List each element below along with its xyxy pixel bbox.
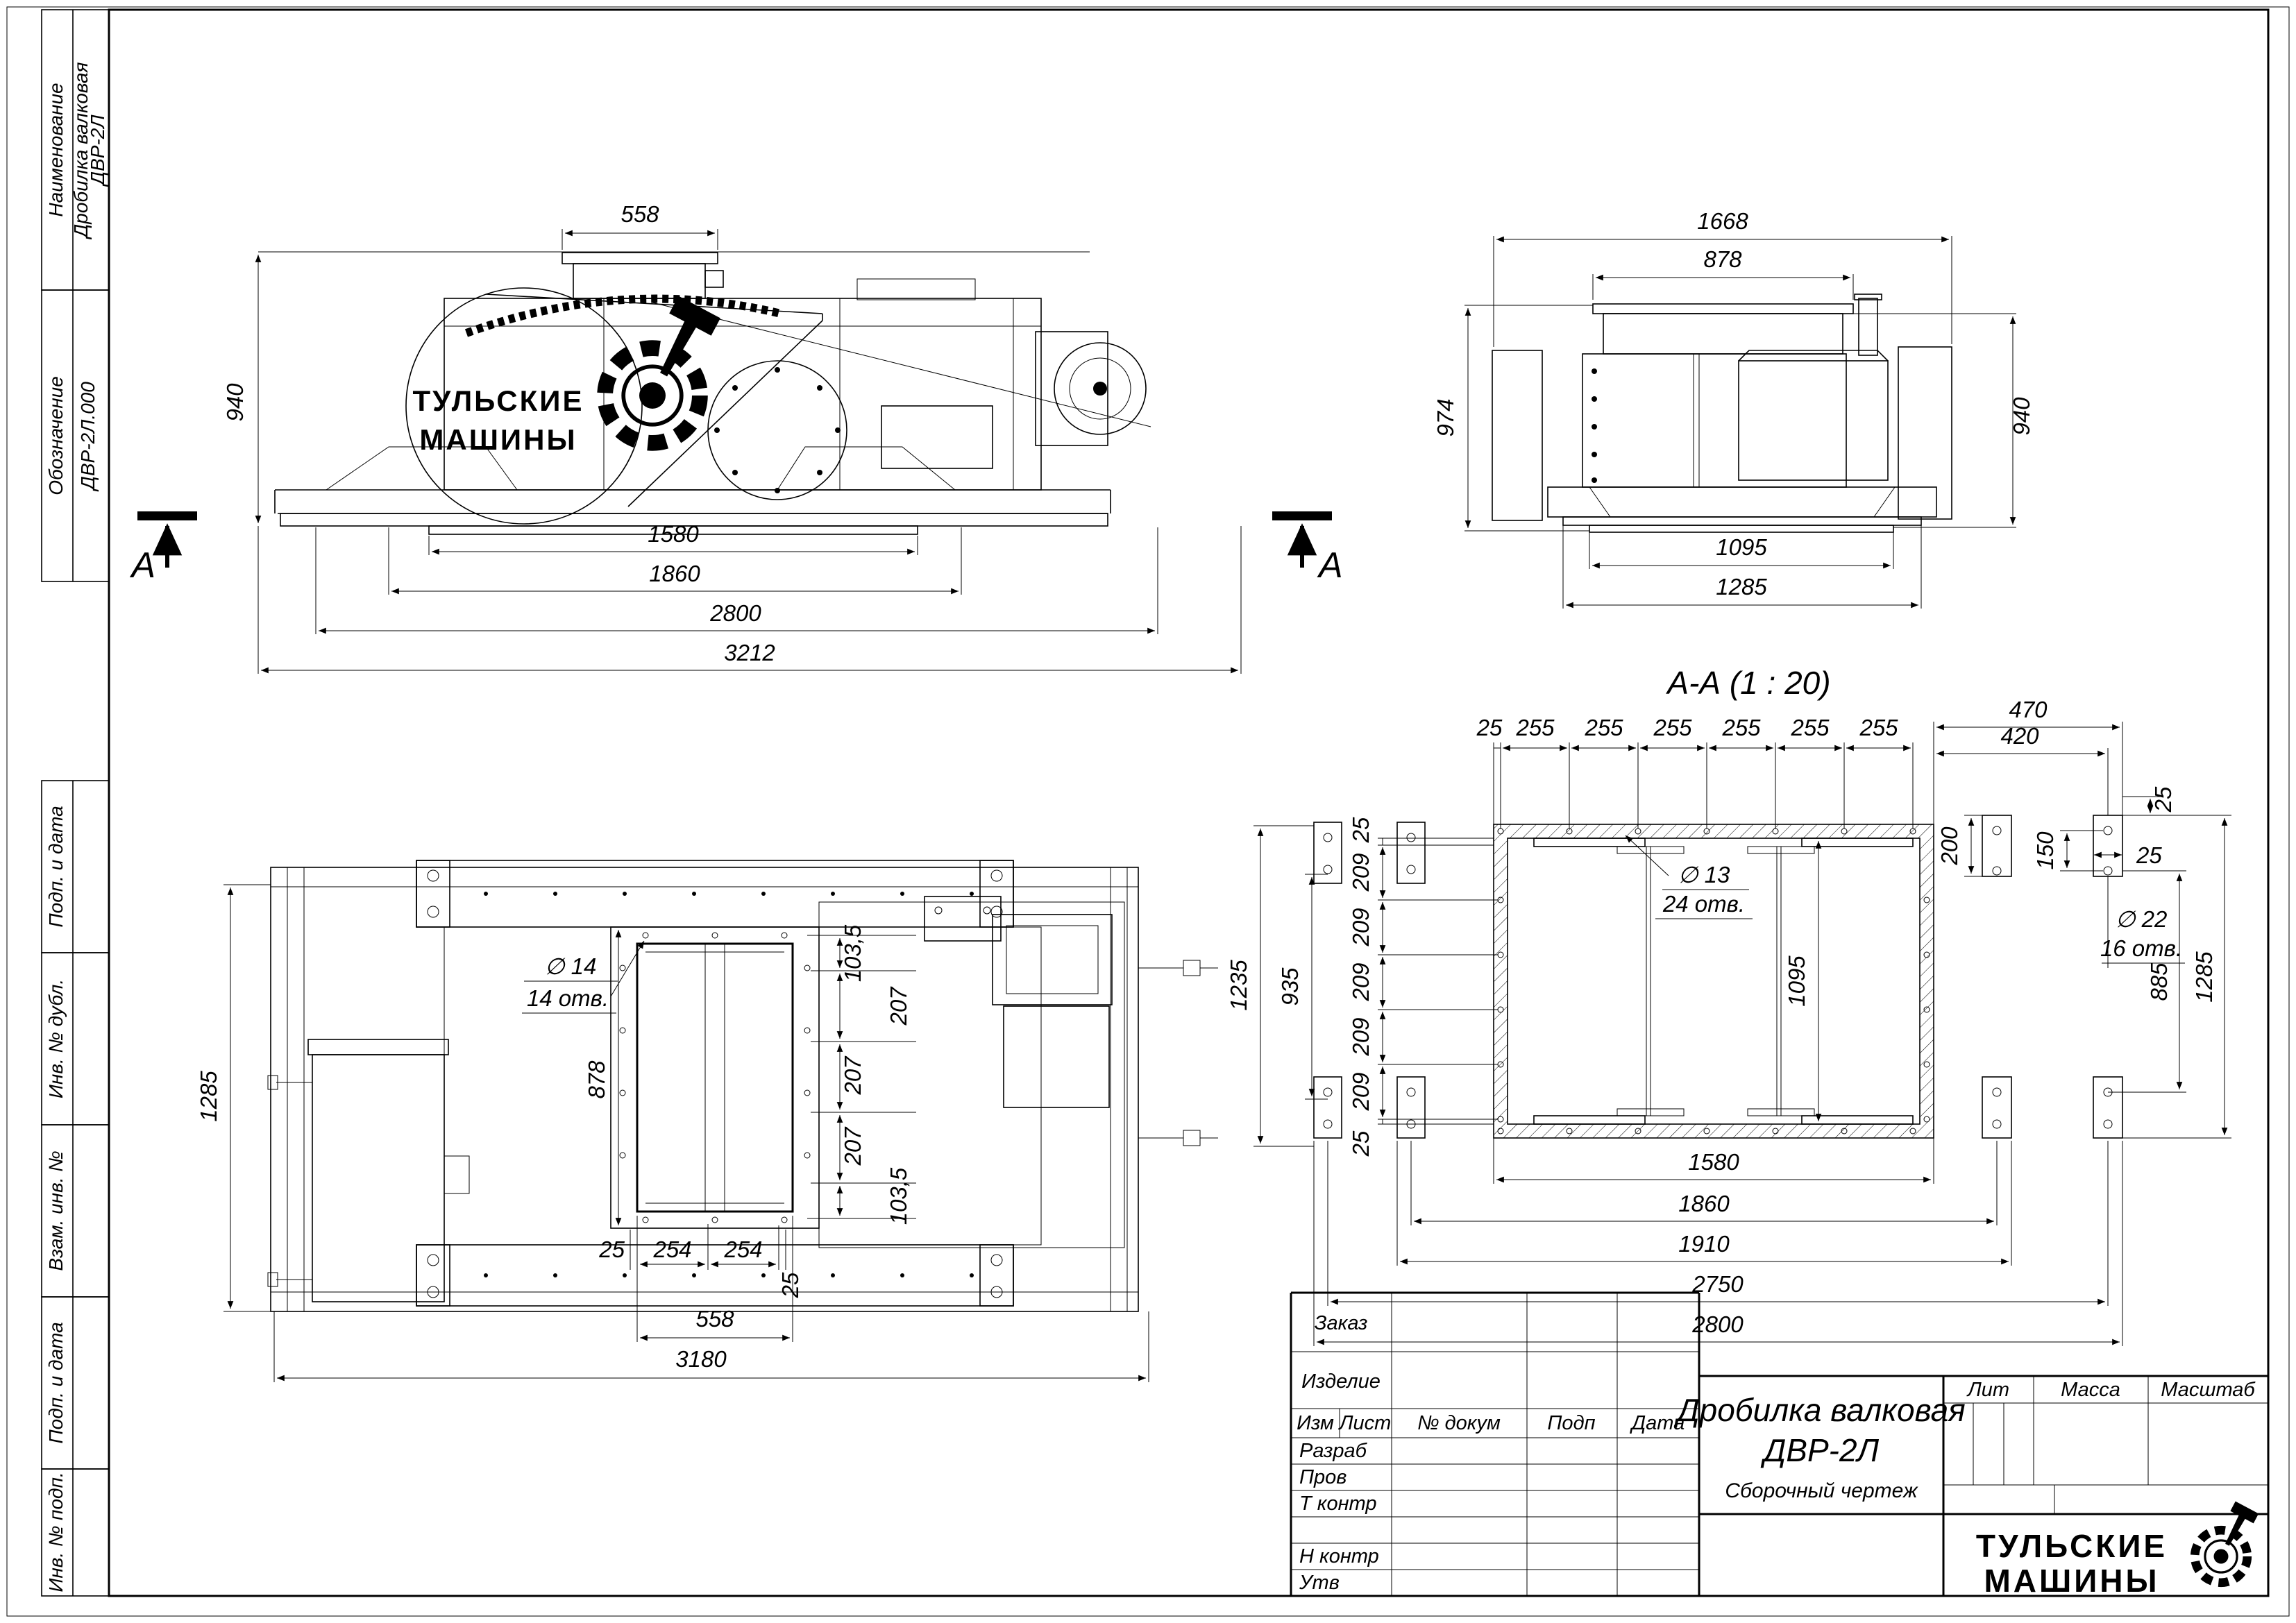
dim-2800: 2800	[709, 600, 761, 626]
side-view: ТУЛЬСКИЕ МАШИНЫ 940 558 1580 1860 2800 3…	[129, 201, 1342, 674]
dim-v207-1: 207	[886, 986, 911, 1026]
stamp-row-label: Инв. № подп.	[45, 1472, 67, 1592]
sheet-border	[7, 7, 2289, 1616]
dim-left25-bot: 25	[1348, 1130, 1374, 1157]
hole-note-d22: ∅ 22	[2116, 906, 2168, 932]
dim-558-plan: 558	[695, 1306, 734, 1332]
dim-255: 255	[1790, 715, 1830, 740]
dim-209: 209	[1348, 1017, 1374, 1056]
dim-1095-section: 1095	[1784, 955, 1809, 1007]
dim-1860: 1860	[649, 561, 700, 586]
left-stamp-column: Наименование Дробилка валковая ДВР-2Л Об…	[42, 10, 109, 1596]
dim-1285-section: 1285	[2191, 951, 2217, 1003]
dim-209: 209	[1348, 1072, 1374, 1111]
tb-subtitle: Сборочный чертеж	[1725, 1479, 1918, 1502]
stamp-row-label: Подп. и дата	[45, 806, 67, 927]
dim-h254-2: 254	[723, 1237, 762, 1262]
dim-3180: 3180	[675, 1346, 727, 1372]
title-block: Заказ Изделие Изм Лист № докум Подп Дата…	[1291, 1293, 2268, 1599]
dim-top25: 25	[1476, 715, 1503, 740]
dim-v103-2: 103,5	[886, 1167, 911, 1225]
section-title: А-А (1 : 20)	[1665, 665, 1830, 701]
dim-v207-3: 207	[840, 1126, 866, 1166]
section-cut-marker-right: А	[1272, 511, 1343, 586]
stamp-row-label: Взам. инв. №	[45, 1150, 67, 1271]
stamp-name-value-2: ДВР-2Л	[87, 114, 108, 187]
tb-order-label: Заказ	[1315, 1312, 1368, 1334]
dim-558: 558	[621, 201, 659, 227]
dim-209: 209	[1348, 908, 1374, 946]
flange-bolt-holes	[620, 933, 810, 1223]
dim-974: 974	[1433, 398, 1458, 436]
dim-3212: 3212	[724, 640, 775, 665]
dim-878-plan: 878	[584, 1060, 609, 1099]
tb-lit-label: Лит	[1966, 1379, 2009, 1401]
hole-note-d22-count: 16 отв.	[2100, 935, 2182, 961]
section-view: А-А (1 : 20) 25 255 255 255 255 255 255 …	[1226, 665, 2231, 1346]
tb-row-prov: Пров	[1299, 1466, 1347, 1488]
dim-209: 209	[1348, 853, 1374, 892]
tb-title-line1: Дробилка валковая	[1673, 1392, 1966, 1428]
dim-255: 255	[1584, 715, 1623, 740]
tb-row-razrab: Разраб	[1299, 1440, 1368, 1462]
plan-view: 1285 ∅ 14 14 отв. 878 103,5 207 207 207 …	[196, 860, 1218, 1382]
tb-mass-label: Масса	[2061, 1379, 2120, 1401]
guard-logo-line2: МАШИНЫ	[419, 423, 577, 456]
dim-209: 209	[1348, 962, 1374, 1001]
dim-v103-1: 103,5	[840, 924, 866, 982]
dim-255: 255	[1859, 715, 1898, 740]
hole-note-d14: ∅ 14	[545, 953, 597, 979]
dim-1668: 1668	[1697, 208, 1748, 234]
tb-product-label: Изделие	[1301, 1370, 1381, 1393]
stamp-row-label: Инв. № дубл.	[45, 979, 67, 1098]
dim-1235: 1235	[1226, 960, 1251, 1011]
dim-1095: 1095	[1716, 534, 1767, 560]
dim-sec-1580: 1580	[1688, 1149, 1739, 1175]
hole-note-d13: ∅ 13	[1678, 862, 1730, 887]
dim-25-offset-top: 25	[2150, 786, 2176, 813]
dim-sec-1910: 1910	[1678, 1231, 1730, 1257]
drawing-sheet: Наименование Дробилка валковая ДВР-2Л Об…	[0, 0, 2296, 1623]
guard-emblem-gear-icon	[605, 296, 720, 443]
dim-885: 885	[2146, 962, 2172, 1001]
dim-1285-plan: 1285	[196, 1071, 221, 1122]
guard-logo-line1: ТУЛЬСКИЕ	[413, 384, 584, 417]
logo-line2: МАШИНЫ	[1984, 1563, 2159, 1599]
tb-title-line2: ДВР-2Л	[1760, 1432, 1880, 1468]
dim-left25-top: 25	[1348, 817, 1374, 843]
dim-h25-1: 25	[598, 1237, 625, 1262]
stamp-lower-cells: Подп. и дата Инв. № дубл. Взам. инв. № П…	[42, 781, 109, 1596]
end-view: 1668 878 974 940 1095 1285	[1433, 208, 2034, 609]
tb-row-nkontr: Н контр	[1299, 1545, 1379, 1567]
section-letter: А	[1317, 545, 1343, 586]
dim-878: 878	[1703, 246, 1742, 272]
hole-note-d14-count: 14 отв.	[527, 985, 609, 1011]
hole-note-d13-count: 24 отв.	[1662, 891, 1745, 917]
section-letter: А	[129, 545, 155, 586]
tb-col-list: Лист	[1338, 1412, 1392, 1434]
dim-sec-1860: 1860	[1678, 1191, 1730, 1216]
dim-255: 255	[1653, 715, 1692, 740]
tb-col-izm: Изм	[1297, 1412, 1334, 1434]
dim-h25-2: 25	[777, 1272, 803, 1298]
tb-col-ndocum: № докум	[1417, 1412, 1501, 1434]
dim-420: 420	[2000, 723, 2039, 749]
dim-470: 470	[2009, 697, 2048, 722]
dim-940-right: 940	[2009, 397, 2034, 436]
tb-scale-label: Масштаб	[2161, 1379, 2256, 1401]
dim-200: 200	[1936, 826, 1962, 866]
dim-150: 150	[2032, 831, 2058, 870]
logo-line1: ТУЛЬСКИЕ	[1976, 1528, 2168, 1564]
section-cut-marker-left: А	[129, 511, 197, 586]
tb-row-tkontr: Т контр	[1299, 1493, 1377, 1515]
dim-940: 940	[222, 383, 248, 422]
stamp-name-label: Наименование	[45, 83, 67, 216]
dim-1580: 1580	[648, 521, 699, 547]
dim-935: 935	[1277, 967, 1303, 1006]
company-logo: ТУЛЬСКИЕ МАШИНЫ	[1976, 1502, 2259, 1599]
dim-h254-1: 254	[652, 1237, 691, 1262]
stamp-code-value: ДВР-2Л.000	[77, 382, 99, 492]
dim-255: 255	[1515, 715, 1555, 740]
dim-255: 255	[1721, 715, 1761, 740]
dim-v207-2: 207	[840, 1055, 866, 1096]
dim-25-hole: 25	[2136, 842, 2162, 868]
hatch-door-bolts	[714, 367, 841, 493]
stamp-row-label: Подп. и дата	[45, 1322, 67, 1443]
dim-1285: 1285	[1716, 574, 1767, 600]
tb-row-utv: Утв	[1299, 1572, 1340, 1594]
tb-col-podp: Подп	[1547, 1412, 1595, 1434]
stamp-code-label: Обозначение	[45, 376, 67, 495]
